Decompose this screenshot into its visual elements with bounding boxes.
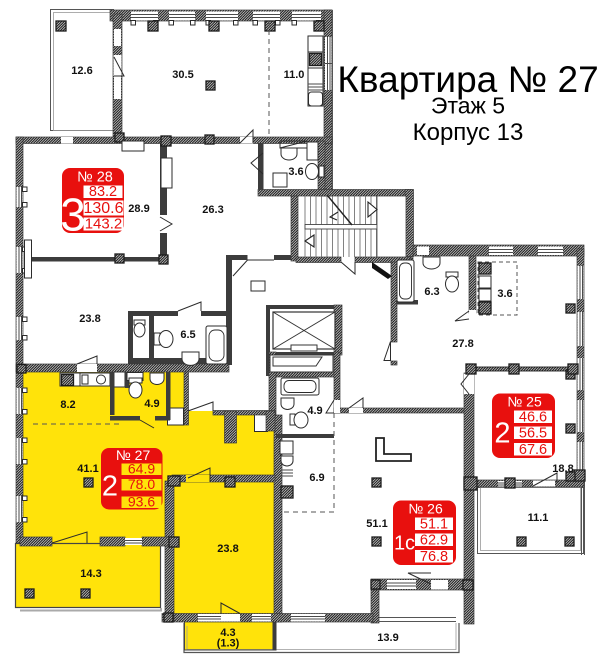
svg-text:76.8: 76.8 [420,549,448,565]
svg-text:130.6: 130.6 [83,200,123,217]
svg-text:143.2: 143.2 [85,216,123,233]
svg-text:11.1: 11.1 [528,512,549,524]
svg-text:28.9: 28.9 [128,203,149,215]
svg-text:Корпус 13: Корпус 13 [413,119,524,146]
svg-text:12.6: 12.6 [71,65,92,77]
svg-text:2: 2 [102,471,118,503]
svg-text:62.9: 62.9 [420,533,448,549]
svg-text:№ 26: № 26 [408,501,443,517]
svg-text:1с: 1с [394,533,415,555]
svg-text:46.6: 46.6 [519,410,547,426]
svg-text:56.5: 56.5 [519,426,547,442]
svg-text:14.3: 14.3 [80,568,101,580]
svg-text:51.1: 51.1 [366,518,387,530]
svg-text:6.9: 6.9 [309,472,324,484]
svg-text:41.1: 41.1 [77,463,98,475]
svg-text:2: 2 [494,418,510,450]
svg-text:51.1: 51.1 [420,517,448,533]
svg-text:13.9: 13.9 [377,632,398,644]
svg-text:23.8: 23.8 [217,543,238,555]
svg-text:30.5: 30.5 [172,69,193,81]
svg-text:67.6: 67.6 [519,442,547,458]
svg-text:83.2: 83.2 [89,184,117,200]
svg-text:18.8: 18.8 [552,463,573,475]
svg-text:23.8: 23.8 [79,313,100,325]
svg-text:6.3: 6.3 [424,286,439,298]
svg-text:11.0: 11.0 [284,69,305,81]
svg-text:3.6: 3.6 [288,166,303,178]
svg-text:64.9: 64.9 [128,461,155,477]
svg-text:4.9: 4.9 [144,398,159,410]
svg-text:27.8: 27.8 [452,338,473,350]
svg-text:3.6: 3.6 [497,288,512,300]
svg-text:93.6: 93.6 [128,494,155,510]
svg-text:4.9: 4.9 [307,405,322,417]
svg-text:26.3: 26.3 [202,204,223,216]
svg-text:Этаж 5: Этаж 5 [431,93,505,119]
svg-text:78.0: 78.0 [128,476,155,492]
svg-text:(1.3): (1.3) [217,638,240,650]
svg-text:3: 3 [60,189,86,241]
svg-text:6.5: 6.5 [180,329,195,341]
svg-text:8.2: 8.2 [60,399,75,411]
svg-text:№ 25: № 25 [507,394,542,410]
